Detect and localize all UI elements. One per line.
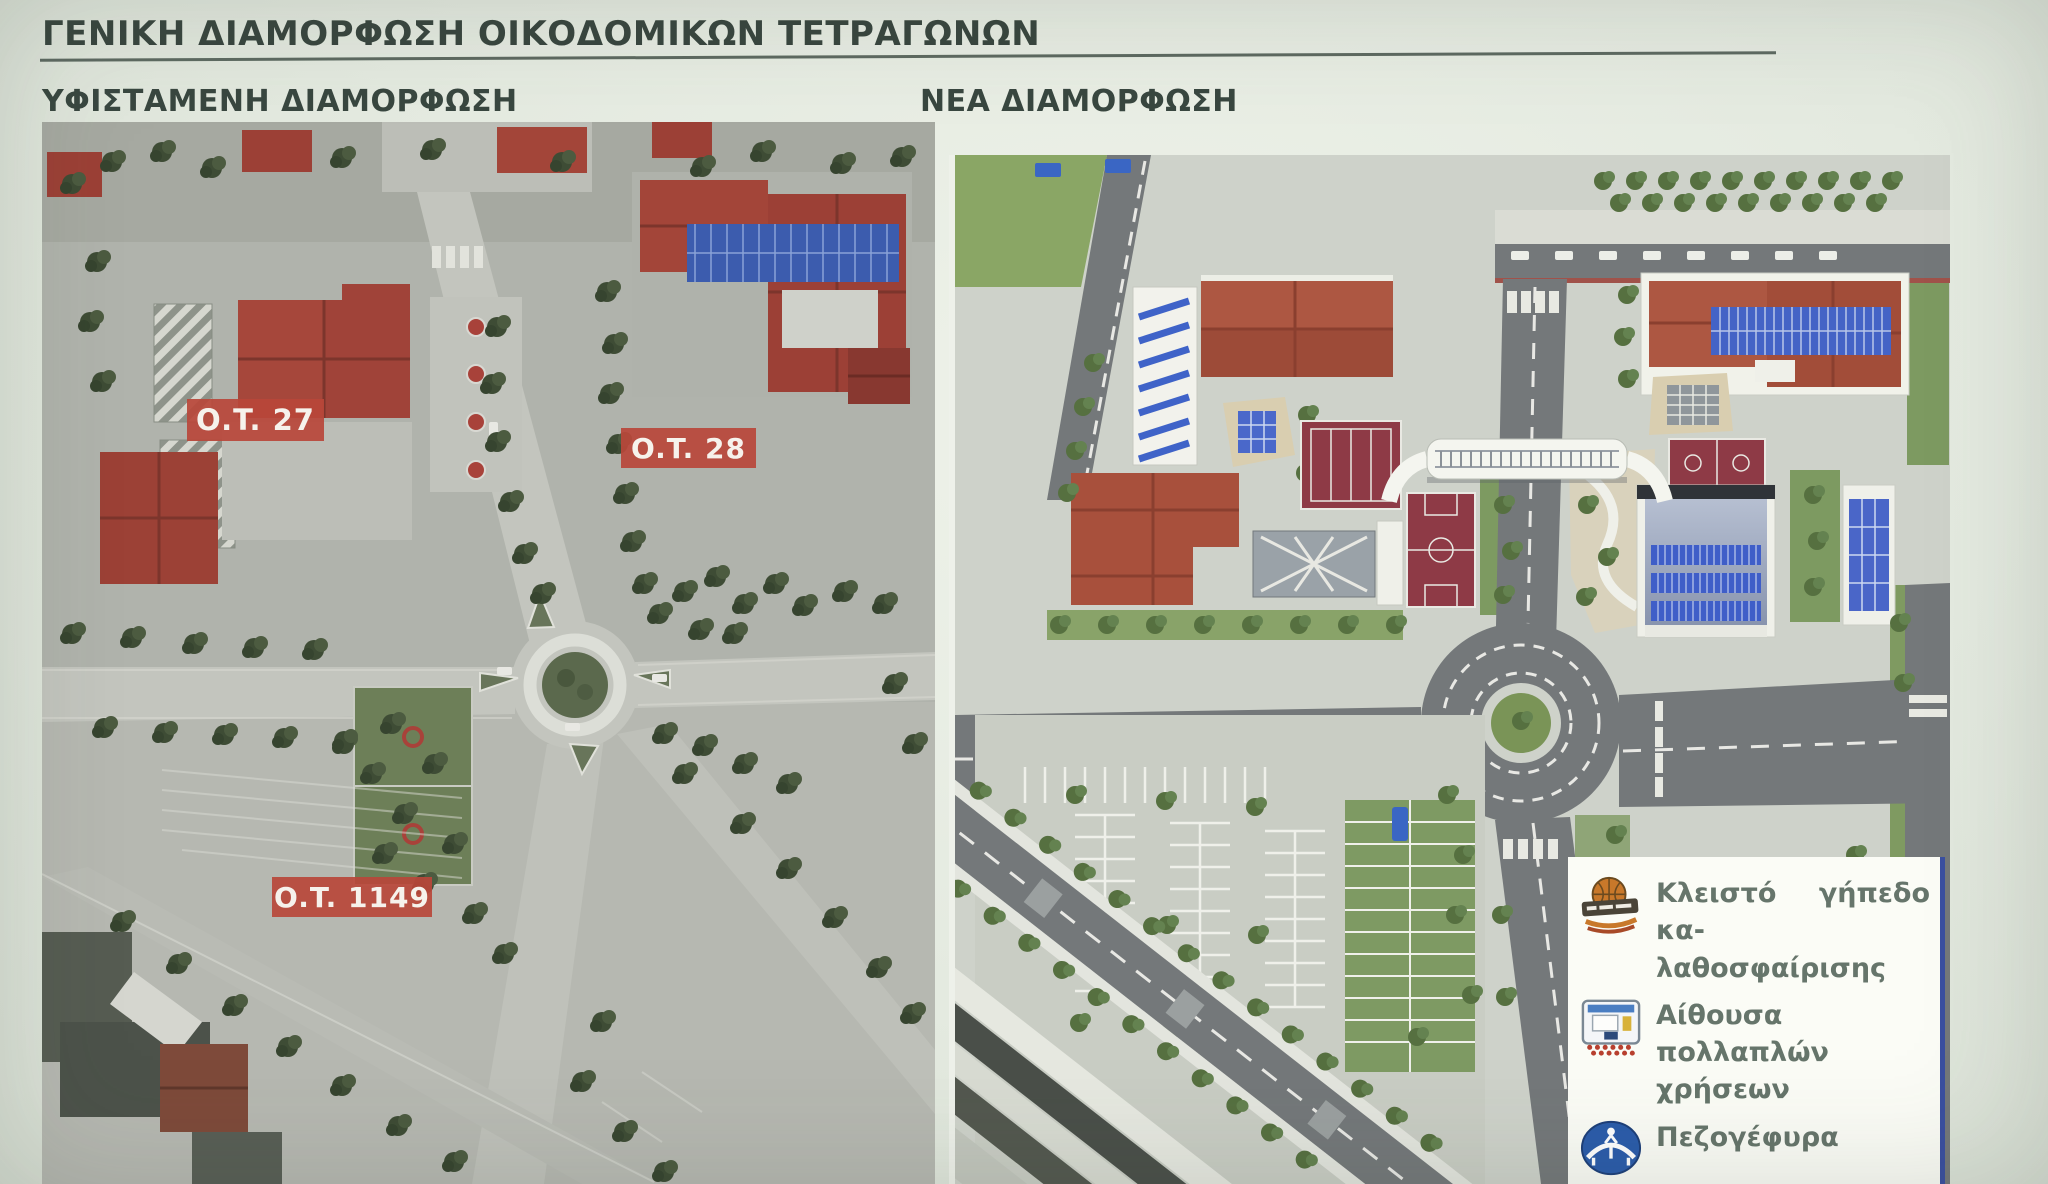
legend-item-gym-line2: λαθοσφαίρισης <box>1656 950 1930 987</box>
legend-item-hall-line1: Αίθουσα πολλαπλών <box>1656 997 1930 1072</box>
pedestrian-bridge-icon <box>1580 1117 1642 1179</box>
school-block-east <box>632 172 912 404</box>
multipurpose-hall-icon <box>1580 995 1642 1057</box>
existing-aerial-photo <box>42 122 935 1184</box>
block-label-ot-1149: O.T. 1149 <box>272 877 432 917</box>
basketball-arena-icon <box>1580 873 1642 935</box>
legend-item-bridge: Πεζογέφυρα <box>1580 1117 1930 1179</box>
legend-item-hall-line2: χρήσεων <box>1656 1071 1930 1108</box>
solar-building-east <box>1843 485 1895 625</box>
left-panel-subtitle: ΥΦΙΣΤΑΜΕΝΗ ΔΙΑΜΟΡΦΩΣΗ <box>42 84 518 119</box>
slide: ΓΕΝΙΚΗ ΔΙΑΜΟΡΦΩΣΗ ΟΙΚΟΔΟΜΙΚΩΝ ΤΕΤΡΑΓΩΝΩΝ… <box>0 0 2048 1184</box>
aerial-photo-graphic <box>42 122 935 1184</box>
map-legend: Κλειστό γήπεδο κα- λαθοσφαίρισης Αίθου <box>1568 857 1945 1184</box>
block-label-ot-27: O.T. 27 <box>187 399 324 441</box>
legend-item-gym-line1: Κλειστό γήπεδο κα- <box>1656 875 1930 950</box>
block-label-ot-28: O.T. 28 <box>621 428 756 468</box>
legend-item-hall: Αίθουσα πολλαπλών χρήσεων <box>1580 995 1930 1109</box>
right-panel-subtitle: ΝΕΑ ΔΙΑΜΟΡΦΩΣΗ <box>920 84 1238 119</box>
legend-item-gym: Κλειστό γήπεδο κα- λαθοσφαίρισης <box>1580 873 1930 987</box>
legend-item-bridge-line1: Πεζογέφυρα <box>1656 1119 1930 1156</box>
outdoor-court-green <box>354 687 472 885</box>
page-title: ΓΕΝΙΚΗ ΔΙΑΜΟΡΦΩΣΗ ΟΙΚΟΔΟΜΙΚΩΝ ΤΕΤΡΑΓΩΝΩΝ <box>42 14 1040 54</box>
closed-basketball-gym <box>1637 485 1775 637</box>
